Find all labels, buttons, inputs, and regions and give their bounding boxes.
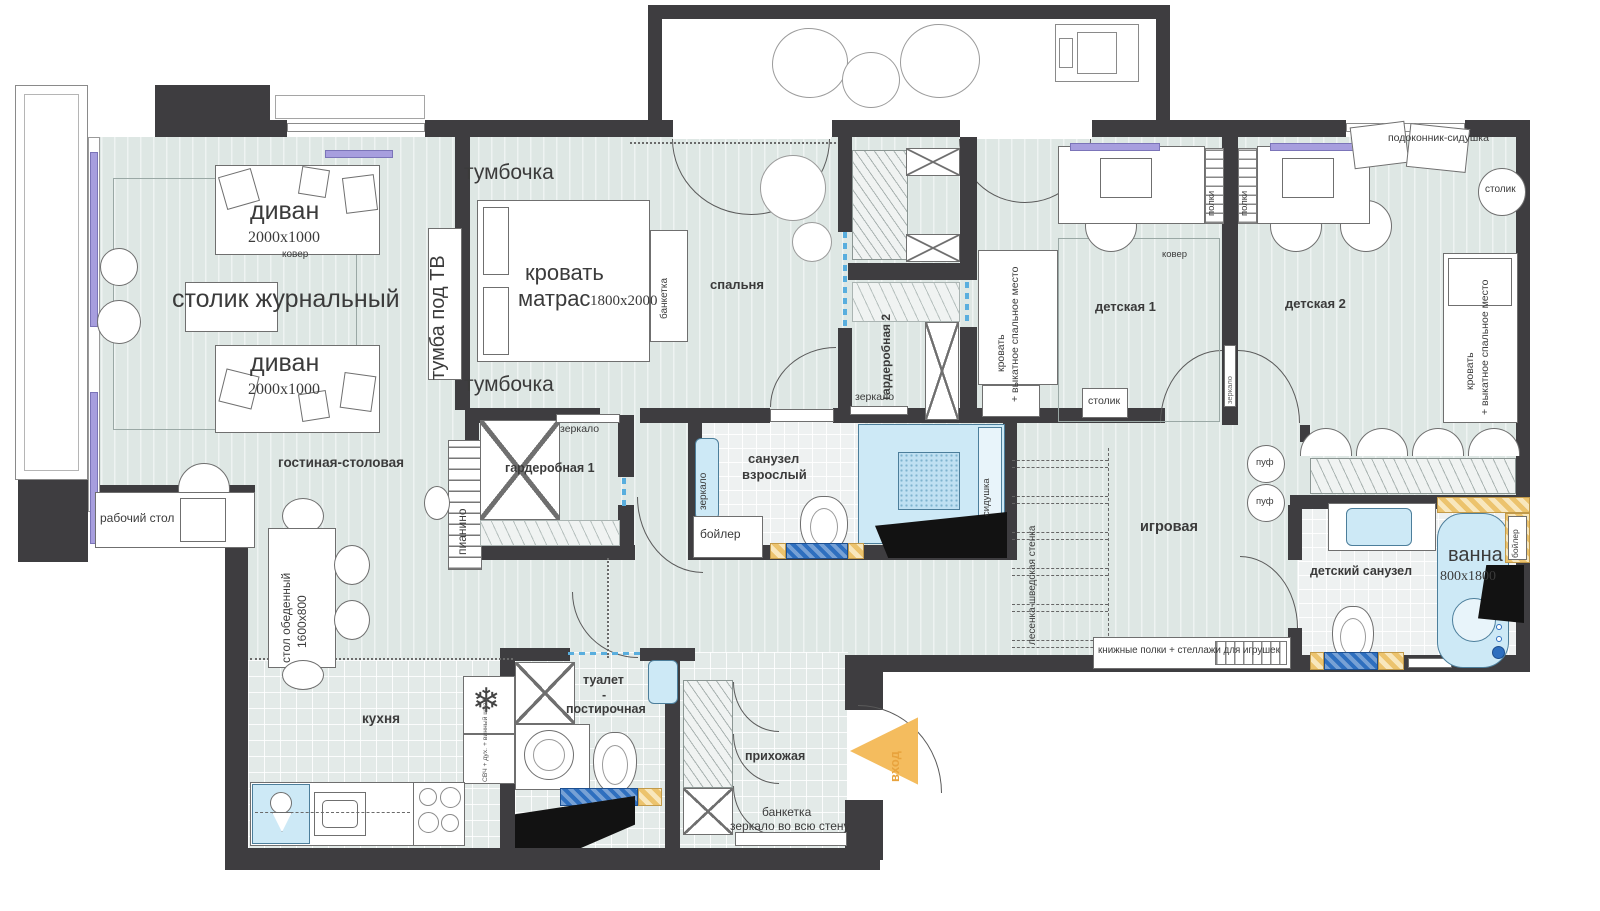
toilet-inner [1340,618,1366,656]
shelves-label: полки [1207,158,1217,216]
room-living: гостиная-столовая [278,456,404,470]
mirror-strip [850,406,908,415]
laptop-icon [1100,158,1152,198]
tile-accent [770,543,786,559]
plant-icon [900,24,980,98]
room-kids1: детская 1 [1095,300,1156,314]
bench-label: банкетка [660,255,670,319]
bed-dim: 1800x2000 [590,294,658,310]
tile-accent [1324,652,1378,670]
toilet-inner [602,745,628,785]
bath-label: ванна [1448,545,1503,566]
room-laundry2: - [602,689,606,702]
sofa-label: диван [250,350,319,376]
sliding-door [843,232,847,328]
sofa-pillow [342,174,378,214]
hall-cabinet [683,788,733,835]
tv-stand-label: тумба под ТВ [428,232,449,380]
boiler-label: бойлер [700,528,741,540]
wall [1156,5,1170,127]
radiator [90,152,98,327]
radiator [325,150,393,158]
wardrobe-cabinet [906,234,960,262]
ladder-rung [1012,604,1108,612]
dining-chair [282,660,324,690]
windowsill-pillow [1406,123,1470,173]
dining-table-label: стол обеденный [280,535,292,663]
side-balcony-inner [24,94,79,471]
room-wardrobe1: гардеробная 1 [505,462,595,475]
window [287,123,425,132]
kid-bed-label2: + выкатное спальное место [1010,252,1021,402]
hall-bench [735,832,847,846]
boiler-label: бойлер [1511,518,1520,558]
toilet-inner [810,508,838,546]
wardrobe-cabinet [906,148,960,176]
tile-accent [1437,497,1530,513]
burner [441,814,459,832]
mirror-strip [556,414,620,423]
wall [225,510,248,870]
sofa-dim: 2000x1000 [248,382,320,399]
mirror-label: зеркало [855,392,894,403]
room-bedroom: спальня [710,278,764,292]
windowsill-seat-label: подоконник-сидушка [1388,133,1489,144]
desk-equipment [180,498,226,542]
room-hallway: прихожая [745,750,805,763]
shower-drain [898,452,960,510]
tile-accent [786,543,848,559]
accent-dot [1496,624,1502,630]
kid-bed-label: кровать [1465,300,1476,390]
nightstand-label: тумбочка [464,374,554,396]
sliding-door [965,282,969,326]
kitchen-appliances-label: СВЧ + дух. + винный шкаф [482,736,489,782]
piano-stool [424,486,450,520]
wall [960,137,977,280]
sofa-dim: 2000x1000 [248,230,320,247]
kitchen-sink-basin [322,800,358,828]
wall [425,120,673,137]
round-table-label: столик [1485,185,1516,195]
nightstand-label: тумбочка [464,162,554,184]
balcony-door-opening [673,118,831,139]
sink-drop-icon [270,792,292,814]
sofa-pillow [298,166,330,198]
bath-dim: 800x1800 [1440,570,1496,585]
mirror-label: зеркало [560,424,599,435]
wall [265,120,287,137]
sofa-label: диван [250,198,319,224]
hall-mirror-label: зеркало во всю стену [730,820,850,832]
window-french [275,95,425,119]
sink [1346,508,1412,546]
treadmill-icon [1077,32,1117,74]
kid-table-label: столик [1088,396,1120,407]
wall [1288,505,1302,560]
wardrobe2-floor [852,282,960,322]
wall [618,505,634,560]
wall [845,800,883,860]
shelf-strip [1270,143,1355,151]
armchair [760,155,826,221]
hall-wardrobe [683,680,733,788]
work-desk-label: рабочий стол [100,512,174,524]
treadmill-icon [1059,38,1073,68]
counter-line [255,812,410,813]
room-kitchen: кухня [362,712,400,726]
door-bath-adult [770,409,834,422]
room-wardrobe2: гардеробная 2 [880,292,892,400]
tile-accent [1310,652,1324,670]
room-bath-kids: детский санузел [1310,565,1412,578]
bed-pillow [483,207,509,275]
tile-accent [1378,652,1404,670]
curtain-line [607,558,609,658]
wall [960,327,977,423]
wall [648,5,662,127]
wall [1092,120,1346,137]
washer-drum-inner [533,739,565,771]
podium-hatch [1310,458,1516,494]
laptop-icon [1282,158,1334,198]
shower-seat-label: сидушка [982,450,992,516]
sink [648,660,678,704]
dining-dim: 1600x800 [296,548,308,648]
wall [640,408,770,423]
outside-mask [0,562,88,911]
room-playroom: игровая [1140,520,1198,535]
room-laundry3: постирочная [566,703,646,716]
mirror-label: зеркало [699,450,709,510]
outside-mask [880,672,1600,911]
room-kids2: детская 2 [1285,297,1346,311]
shelves-label: полки [1240,158,1250,216]
bookshelf-label: книжные полки + стеллажи для игрушек [1098,646,1280,656]
wall [155,85,270,137]
wardrobe1-floor [480,520,620,546]
rug-label: ковер [1162,250,1187,260]
storage-hatch [852,150,908,260]
windowsill-pillow [1350,121,1410,169]
balcony-table [842,52,900,108]
ladder-rung [1012,496,1108,504]
kid-bed-label2: + выкатное спальное место [1480,255,1491,415]
accent-dot [1492,646,1505,659]
accent-dot [1496,636,1502,642]
balcony-door-opening [960,118,1092,139]
sliding-door [568,652,640,655]
entrance-label: вход [888,722,902,782]
wall [648,5,1170,19]
wardrobe-cabinet [925,322,959,420]
kid-bed-label: кровать [996,282,1007,372]
bed-label: кровать [525,262,604,285]
tile-accent [848,543,864,559]
burner [419,788,437,806]
ladder-rail [1108,448,1109,656]
rug-label: ковер [282,250,308,260]
pouf-label: пуф [1256,497,1274,507]
pouf-chair [97,300,141,344]
wall [225,848,880,870]
burner [440,787,461,808]
ladder-rung [1012,532,1108,540]
room-bath-adult: санузел [748,452,799,466]
sliding-door [622,478,626,508]
wall [18,478,88,562]
wall [832,120,960,137]
wall [618,415,634,477]
ladder-label: лесенка-шведская стенка [1028,470,1038,645]
wall [848,263,960,280]
sofa-pillow [340,372,377,412]
dining-chair [334,545,370,585]
pouf-label: пуф [1256,458,1274,468]
pouf-chair [100,248,138,286]
piano-label: пианино [456,455,468,555]
wall [845,655,883,710]
hall-bench-label: банкетка [762,806,811,818]
wall [465,545,635,560]
shelf-strip [1070,143,1160,151]
curtain-line [630,142,840,144]
ladder-rung [1012,568,1108,576]
plant-icon [772,28,848,98]
tile-accent [638,788,662,806]
wall [838,137,852,232]
floor-plan: ❄ диван 2000x1000 ковер столик журнальны… [0,0,1600,911]
coffee-table-label: столик журнальный [172,286,400,312]
burner [418,812,439,833]
mirror-label: зеркало [1226,352,1234,404]
bed-label2: матрас [518,288,590,311]
room-laundry: туалет [583,674,624,687]
bed-pillow [483,287,509,355]
armchair [792,222,832,262]
dining-chair [334,600,370,640]
ladder-rung [1012,460,1108,468]
room-bath-adult2: взрослый [742,468,807,482]
